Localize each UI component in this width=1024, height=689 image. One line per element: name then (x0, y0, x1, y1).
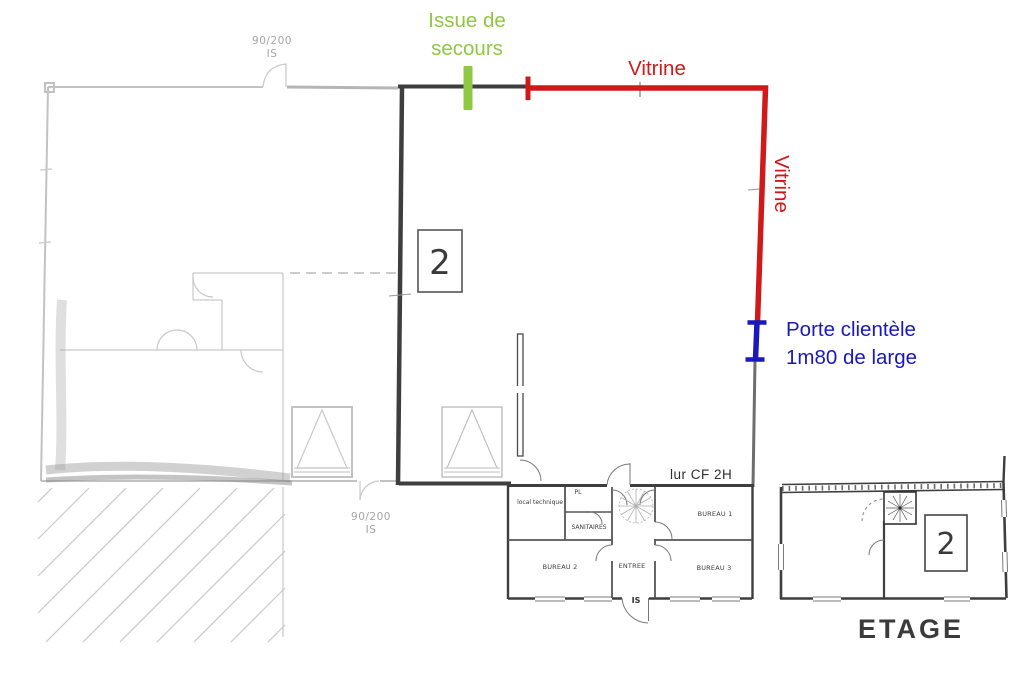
fire-wall-label: lur CF 2H (670, 467, 732, 482)
etage-top-wall (782, 482, 1003, 485)
hatch-area (38, 487, 285, 642)
door-arc (869, 540, 884, 555)
room-label-entree: ENTREE (619, 562, 646, 570)
floor-plan-page: 90/200 IS 90/200 IS (0, 0, 1024, 689)
interior-partition (518, 334, 524, 456)
entrance-door-arc (263, 64, 286, 87)
annotation-porte-clientele: Porte clientèle 1m80 de large (746, 318, 918, 369)
issue-secours-label-line1: Issue de (428, 9, 506, 32)
annotation-issue-secours: Issue de secours (428, 9, 506, 110)
railing-ticks (782, 486, 1003, 489)
porte-label-line2: 1m80 de large (786, 346, 917, 369)
emergency-exit-marker (464, 66, 473, 110)
vitrine-top-label: Vitrine (628, 57, 686, 80)
gray-top-wall-right (287, 87, 398, 88)
door-arc (177, 330, 197, 350)
room-label-bureau2: BUREAU 2 (543, 563, 578, 571)
etage-block: 2 ETAGE (776, 456, 1010, 644)
door-arc (520, 460, 541, 481)
room-label-bureau1: BUREAU 1 (698, 510, 733, 518)
door-arc (193, 277, 213, 297)
room-label-bureau3: BUREAU 3 (697, 564, 732, 572)
stair-center (898, 506, 901, 509)
gray-left-wall (41, 87, 48, 481)
neighbor-building: 90/200 IS 90/200 IS (39, 35, 400, 536)
wall-tick (40, 169, 52, 170)
door-is-label: IS (366, 524, 377, 536)
room-label-local-technique: local technique (517, 499, 563, 506)
door-size-label: 90/200 (351, 511, 391, 523)
unit2-right-wall-lower (753, 360, 755, 487)
unit2-left-wall (398, 87, 402, 485)
pencil-shading (60, 300, 62, 470)
door-is-label: IS (267, 48, 278, 60)
ramp-symbol (442, 407, 502, 477)
door-arc (596, 545, 612, 561)
wall-stub (1004, 456, 1005, 482)
door-arc (607, 464, 630, 485)
door-arc (590, 512, 602, 524)
dashed-stair-path (862, 499, 884, 521)
unit-number: 2 (429, 243, 451, 283)
etage-label: ETAGE (858, 614, 964, 644)
door-arc (157, 330, 177, 350)
porte-label-line1: Porte clientèle (786, 318, 916, 341)
etage-unit-number: 2 (936, 527, 955, 562)
vitrine-side-label: Vitrine (770, 155, 793, 213)
room-label-pl: PL (575, 489, 583, 496)
office-block: lur CF 2H IS (508, 463, 754, 623)
door-arc (655, 545, 671, 561)
partition-gap (516, 386, 525, 393)
issue-secours-label-line2: secours (431, 37, 503, 60)
porte-marker (756, 323, 758, 360)
etage-right-wall (1004, 482, 1007, 598)
door-arc (655, 522, 672, 539)
wall-tick (748, 189, 760, 190)
floor-plan: 90/200 IS 90/200 IS (0, 0, 1024, 689)
door-size-label: 90/200 (252, 35, 292, 47)
room-label-sanitaires: SANITAIRES (571, 524, 606, 531)
vitrine-line (528, 88, 766, 323)
is-exit-label: IS (632, 596, 641, 605)
ramp-symbol (292, 407, 352, 477)
unit2-ground-floor: 2 (389, 82, 760, 487)
door-arc (241, 350, 263, 372)
wall-tick (39, 242, 51, 243)
